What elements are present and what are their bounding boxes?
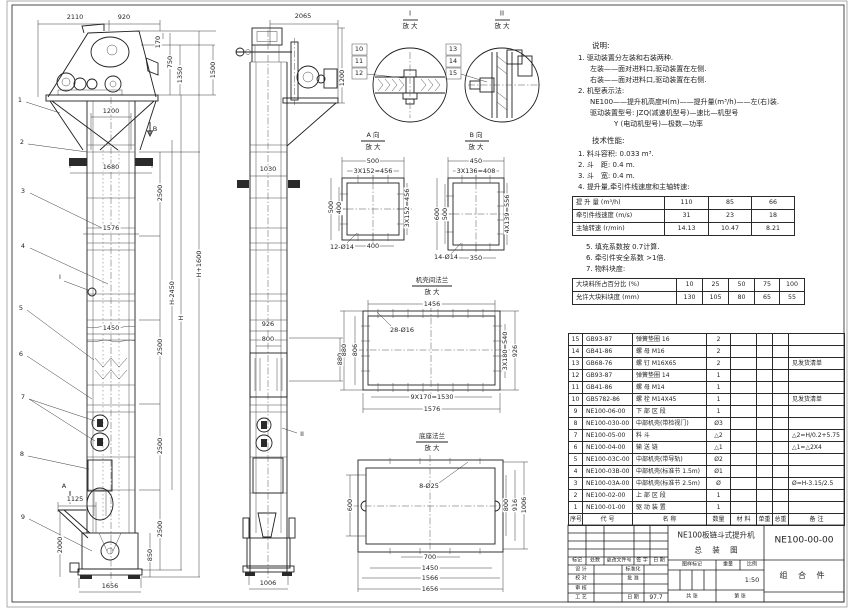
bom-cell-unit-weight <box>757 382 773 394</box>
dim-front-2500-4: 2500 <box>157 520 164 539</box>
bom-row: 5 NE100-03C-00 中部机壳(带导轨) Ø2 <box>569 454 845 466</box>
dim-side-1030: 1030 <box>259 166 278 173</box>
dim-cf-880: 880 <box>341 343 348 357</box>
bom-cell-name: 输 送 链 <box>633 442 707 454</box>
note-line: 驱动装置型号: JZQ(减速机型号)—速比—机型号 <box>590 110 738 117</box>
bom-cell-total-weight <box>773 406 789 418</box>
callout-6: 6 <box>18 351 24 358</box>
bom-cell-no: 2 <box>569 490 583 502</box>
base-flange-zoom-label: 放 大 <box>423 445 440 452</box>
bom-cell-no: 10 <box>569 394 583 406</box>
bom-row: 12 GB93-87 弹簧垫圈 14 1 <box>569 370 845 382</box>
bom-cell-qty: △2 <box>707 430 731 442</box>
bom-cell-name: 螺 母 M14 <box>633 382 707 394</box>
bom-cell-remark <box>789 454 845 466</box>
bom-cell-material <box>731 394 757 406</box>
dim-bf-1450: 1450 <box>421 565 440 572</box>
bom-row: 15 GB93-87 弹簧垫圈 16 2 <box>569 334 845 346</box>
dim-b-holes: 14-Ø14 <box>433 254 459 261</box>
bom-cell-name: 螺 母 M16 <box>633 346 707 358</box>
bom-table: 15 GB93-87 弹簧垫圈 16 2 14 GB41-86 螺 母 M16 … <box>568 333 845 526</box>
scale-label: 比例 <box>747 563 757 568</box>
bom-cell-material <box>731 502 757 514</box>
bom-cell-code: NE100-03C-00 <box>583 454 633 466</box>
bom-cell-total-weight <box>773 454 789 466</box>
dim-front-2000: 2000 <box>57 536 64 555</box>
lump-size-table: 大块料所占百分比 (%)10255075100 允许大块料块度 (mm)1301… <box>572 278 805 305</box>
drawing-sheet: 2110 920 170 750 1350 1500 1200 B 1680 2… <box>0 0 850 609</box>
table-row: 主轴转速 (r/min)14.1310.478.21 <box>573 223 795 236</box>
dim-front-h-2450: H-2450 <box>169 280 176 306</box>
bom-row: 2 NE100-02-00 上 部 区 段 1 <box>569 490 845 502</box>
bom-cell-remark: Ø=H-3.15/2.5 <box>789 478 845 490</box>
bom-header-row: 序号代 号 名 称数量 材 料单重 总重备 注 <box>569 514 845 526</box>
bom-row: 6 NE100-04-00 输 送 链 △1 △1=△2X4 <box>569 442 845 454</box>
bom-cell-remark: △2=H/0.2+5.75 <box>789 430 845 442</box>
table-row: 牵引件线速度 (m/s)312318 <box>573 210 795 223</box>
dim-a-400: 400 <box>366 243 380 250</box>
bom-cell-qty: 1 <box>707 406 731 418</box>
bom-cell-material <box>731 346 757 358</box>
view-mark-b: B <box>152 126 158 133</box>
bom-cell-material <box>731 466 757 478</box>
scale-value: 1:50 <box>745 577 760 584</box>
bom-cell-qty: 1 <box>707 502 731 514</box>
detail-ii-linework <box>446 20 540 122</box>
bom-cell-unit-weight <box>757 430 773 442</box>
bom-cell-total-weight <box>773 394 789 406</box>
table-row: 提 升 量 (m³/h)1108566 <box>573 197 795 210</box>
bom-row: 3 NE100-03A-00 中部机壳(标准节 2.5m) Ø Ø=H-3.15… <box>569 478 845 490</box>
bom-row: 13 GB68-76 螺 钉 M16X65 2 见发货清单 <box>569 358 845 370</box>
detail-i-title: I <box>408 11 412 18</box>
bom-cell-material <box>731 406 757 418</box>
bom-cell-qty: Ø3 <box>707 418 731 430</box>
dim-front-1200: 1200 <box>102 108 121 115</box>
callout-2: 2 <box>19 139 25 146</box>
dim-front-1450: 1450 <box>102 325 121 332</box>
bom-cell-no: 6 <box>569 442 583 454</box>
detail-ii-title: II <box>499 11 505 18</box>
stamp-label: 图样标记 <box>682 563 702 568</box>
dim-b-500: 500 <box>442 207 449 221</box>
rev-header-date: 日 期 <box>653 559 665 564</box>
bom-cell-code: GB41-86 <box>583 382 633 394</box>
dim-bf-1566: 1566 <box>421 575 440 582</box>
product-title: NE100板链斗式提升机 <box>677 531 754 539</box>
bom-cell-remark <box>789 502 845 514</box>
dim-a-pitch-right: 3X152=456 <box>404 188 411 229</box>
bom-cell-name: 中部机壳(标准节 1.5m) <box>633 466 707 478</box>
role-approve: 批 准 <box>627 577 639 582</box>
callout-13: 13 <box>448 46 458 53</box>
bom-cell-total-weight <box>773 346 789 358</box>
bom-cell-code: NE100-02-00 <box>583 490 633 502</box>
bom-cell-unit-weight <box>757 478 773 490</box>
callout-12: 12 <box>354 70 364 77</box>
detail-ii-zoom-label: 放 大 <box>493 23 510 30</box>
bom-cell-remark <box>789 382 845 394</box>
dim-side-2065: 2065 <box>294 13 313 20</box>
bom-cell-material <box>731 382 757 394</box>
bom-cell-code: GB68-76 <box>583 358 633 370</box>
bom-cell-code: NE100-030-00 <box>583 418 633 430</box>
bom-cell-material <box>731 430 757 442</box>
callout-10: 10 <box>354 46 364 53</box>
notes-title: 说明: <box>592 42 610 50</box>
bom-cell-unit-weight <box>757 346 773 358</box>
bom-cell-total-weight <box>773 382 789 394</box>
rev-header-docno: 更改文件号 <box>606 559 631 564</box>
bom-row: 4 NE100-03B-00 中部机壳(标准节 1.5m) Ø1 <box>569 466 845 478</box>
bom-cell-qty: 1 <box>707 370 731 382</box>
bom-cell-name: 螺 钉 M16X65 <box>633 358 707 370</box>
side-view-linework <box>236 28 338 585</box>
dim-a-400-left: 400 <box>336 201 343 215</box>
side-view-dimension-lines <box>249 20 345 589</box>
dim-b-pitch: 3X136=408 <box>456 168 497 175</box>
dim-a-holes: 12-Ø14 <box>329 244 355 251</box>
dim-cf-806: 806 <box>352 343 359 357</box>
bom-cell-qty: 1 <box>707 382 731 394</box>
bom-cell-remark <box>789 466 845 478</box>
tech-line: 5. 填充系数按 0.7计算. <box>586 244 660 251</box>
dim-front-1500: 1500 <box>210 61 217 80</box>
dim-front-1576: 1576 <box>102 225 121 232</box>
callout-14: 14 <box>448 58 458 65</box>
bom-cell-no: 11 <box>569 382 583 394</box>
bom-cell-remark <box>789 346 845 358</box>
dim-cf-1530: 9X170=1530 <box>410 394 455 401</box>
note-line: 右装——面对进料口,驱动装置在右侧. <box>590 77 706 84</box>
dim-front-850: 850 <box>147 548 154 562</box>
bom-cell-no: 4 <box>569 466 583 478</box>
bom-cell-no: 7 <box>569 430 583 442</box>
bom-cell-unit-weight <box>757 394 773 406</box>
bom-cell-name: 中部机壳(带检视门) <box>633 418 707 430</box>
tech-line: 4. 提升量,牵引件线速度和主轴转速: <box>578 184 690 191</box>
dim-b-600: 600 <box>434 207 441 221</box>
weight-label: 重量 <box>723 563 733 568</box>
bom-cell-name: 中部机壳(带导轨) <box>633 454 707 466</box>
bom-cell-total-weight <box>773 442 789 454</box>
bom-cell-total-weight <box>773 478 789 490</box>
casing-flange-zoom-label: 放 大 <box>423 289 440 296</box>
dim-bf-1656: 1656 <box>421 586 440 593</box>
detail-i-zoom-label: 放 大 <box>401 23 418 30</box>
bom-cell-code: NE100-04-00 <box>583 442 633 454</box>
detail-a-title: A 向 <box>365 132 380 139</box>
bom-cell-total-weight <box>773 418 789 430</box>
bom-cell-remark <box>789 490 845 502</box>
detail-b-title: B 向 <box>468 132 483 139</box>
detail-mark-i: I <box>58 274 62 281</box>
bom-cell-remark: 见发货清单 <box>789 394 845 406</box>
rev-header-sign: 签 字 <box>636 559 648 564</box>
bom-cell-no: 14 <box>569 346 583 358</box>
note-line: 左装——面对进料口,驱动装置在左侧. <box>590 66 706 73</box>
detail-i-linework <box>352 20 447 122</box>
dim-front-2500-2: 2500 <box>157 338 164 357</box>
bom-cell-qty: Ø1 <box>707 466 731 478</box>
dim-front-1680: 1680 <box>102 164 121 171</box>
tech-line: 3. 斗 宽: 0.4 m. <box>578 173 635 180</box>
dim-side-1006: 1006 <box>259 580 278 587</box>
dim-cf-1456: 1456 <box>423 301 442 308</box>
callout-7: 7 <box>20 394 26 401</box>
bom-cell-unit-weight <box>757 334 773 346</box>
bom-cell-total-weight <box>773 370 789 382</box>
bom-cell-remark: 见发货清单 <box>789 358 845 370</box>
bom-row: 7 NE100-05-00 料 斗 △2 △2=H/0.2+5.75 <box>569 430 845 442</box>
bom-cell-total-weight <box>773 490 789 502</box>
bom-cell-name: 弹簧垫圈 14 <box>633 370 707 382</box>
bom-cell-code: NE100-01-00 <box>583 502 633 514</box>
callout-15: 15 <box>448 70 458 77</box>
bom-cell-material <box>731 454 757 466</box>
dim-bf-700: 700 <box>423 554 437 561</box>
bom-row: 14 GB41-86 螺 母 M16 2 <box>569 346 845 358</box>
dim-bf-1006: 1006 <box>521 496 528 515</box>
bom-row: 8 NE100-030-00 中部机壳(带检视门) Ø3 <box>569 418 845 430</box>
tech-line: 1. 料斗容积: 0.033 m³. <box>578 151 654 158</box>
note-line: 2. 机型表示法: <box>578 88 624 95</box>
dim-cf-540: 3X180=540 <box>502 331 509 372</box>
role-design: 设 计 <box>575 567 587 572</box>
bom-cell-material <box>731 370 757 382</box>
bom-cell-qty: 2 <box>707 358 731 370</box>
bom-cell-name: 弹簧垫圈 16 <box>633 334 707 346</box>
bom-cell-code: GB93-87 <box>583 334 633 346</box>
bom-cell-unit-weight <box>757 490 773 502</box>
note-line: 1. 驱动装置分左装和右装两种. <box>578 55 673 62</box>
bom-cell-qty: 1 <box>707 394 731 406</box>
bom-cell-no: 8 <box>569 418 583 430</box>
dim-bf-600: 600 <box>347 498 354 512</box>
table-row: 大块料所占百分比 (%)10255075100 <box>573 279 805 292</box>
note-line: Y (电动机型号)—极数—功率 <box>614 121 703 128</box>
callout-1: 1 <box>17 97 23 104</box>
callout-4: 4 <box>20 243 26 250</box>
bom-cell-unit-weight <box>757 442 773 454</box>
callout-8: 8 <box>19 451 25 458</box>
bom-cell-qty: 1 <box>707 490 731 502</box>
callout-9: 9 <box>20 514 26 521</box>
callout-11: 11 <box>354 58 364 65</box>
bom-cell-unit-weight <box>757 370 773 382</box>
bom-cell-name: 下 部 区 段 <box>633 406 707 418</box>
dim-front-920: 920 <box>117 14 131 21</box>
sheet-no-label: 第 张 <box>734 594 746 599</box>
bom-cell-unit-weight <box>757 466 773 478</box>
bom-cell-material <box>731 334 757 346</box>
dim-front-2110: 2110 <box>66 14 85 21</box>
bom-cell-material <box>731 358 757 370</box>
dim-front-h-1600: H+1600 <box>196 250 203 279</box>
titleblock-date: 97.7 <box>649 595 662 601</box>
dim-a-500: 500 <box>366 158 380 165</box>
bom-row: 1 NE100-01-00 驱 动 装 置 1 <box>569 502 845 514</box>
bom-cell-qty: 2 <box>707 346 731 358</box>
bom-cell-total-weight <box>773 502 789 514</box>
dim-side-926: 926 <box>261 321 275 328</box>
bom-cell-name: 中部机壳(标准节 2.5m) <box>633 478 707 490</box>
dim-b-350: 350 <box>469 255 483 262</box>
dim-b-450: 450 <box>469 158 483 165</box>
bom-cell-name: 驱 动 装 置 <box>633 502 707 514</box>
bom-cell-unit-weight <box>757 502 773 514</box>
note-line: NE100——提升机高度H(m)——提升量(m³/h)——左(右)装. <box>590 99 779 106</box>
bom-cell-material <box>731 478 757 490</box>
dim-front-2500-3: 2500 <box>157 437 164 456</box>
tech-line: 7. 物料块度: <box>586 266 625 273</box>
bom-cell-no: 13 <box>569 358 583 370</box>
callout-3: 3 <box>20 188 26 195</box>
bom-cell-remark: △1=△2X4 <box>789 442 845 454</box>
dim-side-1200: 1200 <box>339 69 346 88</box>
bom-row: 11 GB41-86 螺 母 M14 1 <box>569 382 845 394</box>
dim-front-1350: 1350 <box>177 66 184 85</box>
bom-cell-name: 料 斗 <box>633 430 707 442</box>
bom-cell-unit-weight <box>757 418 773 430</box>
bom-cell-code: GB93-87 <box>583 370 633 382</box>
role-audit: 审 核 <box>575 586 587 591</box>
bom-cell-unit-weight <box>757 406 773 418</box>
dim-bf-916: 916 <box>512 498 519 512</box>
bom-cell-code: GB5782-86 <box>583 394 633 406</box>
bom-cell-code: NE100-05-00 <box>583 430 633 442</box>
rev-header-count: 处数 <box>590 559 600 564</box>
detail-b-zoom-label: 放 大 <box>467 144 484 151</box>
bom-cell-qty: Ø2 <box>707 454 731 466</box>
role-standardization: 标准化 <box>625 567 640 572</box>
bom-cell-no: 12 <box>569 370 583 382</box>
dim-bf-holes: 8-Ø25 <box>418 483 440 490</box>
callout-5: 5 <box>18 305 24 312</box>
performance-table: 提 升 量 (m³/h)1108566 牵引件线速度 (m/s)312318 主… <box>572 196 795 236</box>
role-date: 日 期 <box>627 595 639 600</box>
dim-bf-800: 800 <box>503 498 510 512</box>
role-check: 校 对 <box>575 577 587 582</box>
bom-cell-code: NE100-03A-00 <box>583 478 633 490</box>
bom-cell-no: 15 <box>569 334 583 346</box>
bom-cell-code: NE100-06-00 <box>583 406 633 418</box>
sheet-total-label: 共 张 <box>686 594 698 599</box>
drawing-number: NE100-00-00 <box>775 537 834 546</box>
bom-cell-no: 3 <box>569 478 583 490</box>
casing-flange-title: 机壳间法兰 <box>415 277 450 284</box>
bom-cell-remark <box>789 370 845 382</box>
bom-cell-name: 螺 栓 M14X45 <box>633 394 707 406</box>
bom-cell-no: 9 <box>569 406 583 418</box>
bom-cell-qty: 2 <box>707 334 731 346</box>
dim-front-1125: 1125 <box>66 496 85 503</box>
bom-cell-total-weight <box>773 358 789 370</box>
front-view-dimension-lines <box>26 20 216 592</box>
dim-b-pitch-right: 4X139=556 <box>504 194 511 235</box>
bom-cell-remark <box>789 406 845 418</box>
tech-line: 2. 斗 距: 0.4 m. <box>578 162 635 169</box>
rev-header-mark: 标记 <box>572 559 582 564</box>
bom-cell-material <box>731 442 757 454</box>
bom-cell-code: NE100-03B-00 <box>583 466 633 478</box>
dim-front-2500-1: 2500 <box>157 184 164 203</box>
part-kind: 组 合 件 <box>779 572 828 580</box>
detail-a-zoom-label: 放 大 <box>364 144 381 151</box>
detail-mark-ii: II <box>299 431 305 438</box>
bom-cell-material <box>731 490 757 502</box>
bom-row: 10 GB5782-86 螺 栓 M14X45 1 见发货清单 <box>569 394 845 406</box>
bom-cell-name: 上 部 区 段 <box>633 490 707 502</box>
role-process: 工 艺 <box>575 595 587 600</box>
bom-cell-no: 5 <box>569 454 583 466</box>
bom-cell-total-weight <box>773 466 789 478</box>
sheet-name: 总 装 图 <box>694 546 741 554</box>
dim-front-750: 750 <box>167 55 174 69</box>
tech-title: 技术性能: <box>592 137 625 145</box>
dim-a-500-left: 500 <box>328 200 335 214</box>
bom-cell-code: GB41-86 <box>583 346 633 358</box>
bom-cell-unit-weight <box>757 358 773 370</box>
bom-cell-remark <box>789 418 845 430</box>
bom-cell-total-weight <box>773 430 789 442</box>
dim-front-1656: 1656 <box>101 583 120 590</box>
tech-line: 6. 牵引件安全系数 >1倍. <box>586 255 666 262</box>
dim-cf-1576: 1576 <box>423 406 442 413</box>
bom-cell-no: 1 <box>569 502 583 514</box>
dim-cf-926: 926 <box>512 344 519 358</box>
dim-side-800: 800 <box>261 336 275 343</box>
bom-cell-qty: △1 <box>707 442 731 454</box>
bom-cell-remark <box>789 334 845 346</box>
bom-cell-unit-weight <box>757 454 773 466</box>
bom-cell-total-weight <box>773 334 789 346</box>
dim-a-pitch: 3X152=456 <box>353 168 394 175</box>
view-mark-a: A <box>61 483 67 490</box>
bom-cell-qty: Ø <box>707 478 731 490</box>
dim-cf-holes: 28-Ø16 <box>389 327 415 334</box>
bom-cell-material <box>731 418 757 430</box>
base-flange-title: 底座法兰 <box>418 433 446 440</box>
dim-front-170: 170 <box>155 35 162 49</box>
bom-row: 9 NE100-06-00 下 部 区 段 1 <box>569 406 845 418</box>
dim-front-h: H <box>178 315 185 322</box>
table-row: 允许大块料块度 (mm)130105806555 <box>573 292 805 305</box>
